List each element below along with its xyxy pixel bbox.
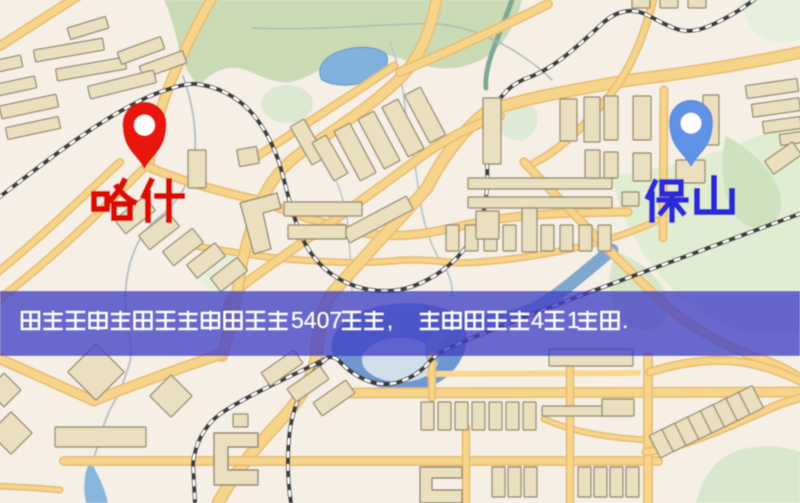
svg-text:,: ,: [387, 308, 393, 333]
svg-text:4: 4: [531, 307, 544, 333]
svg-text:1: 1: [567, 307, 580, 333]
svg-text:.: .: [622, 307, 628, 333]
svg-text:5407: 5407: [291, 307, 342, 333]
